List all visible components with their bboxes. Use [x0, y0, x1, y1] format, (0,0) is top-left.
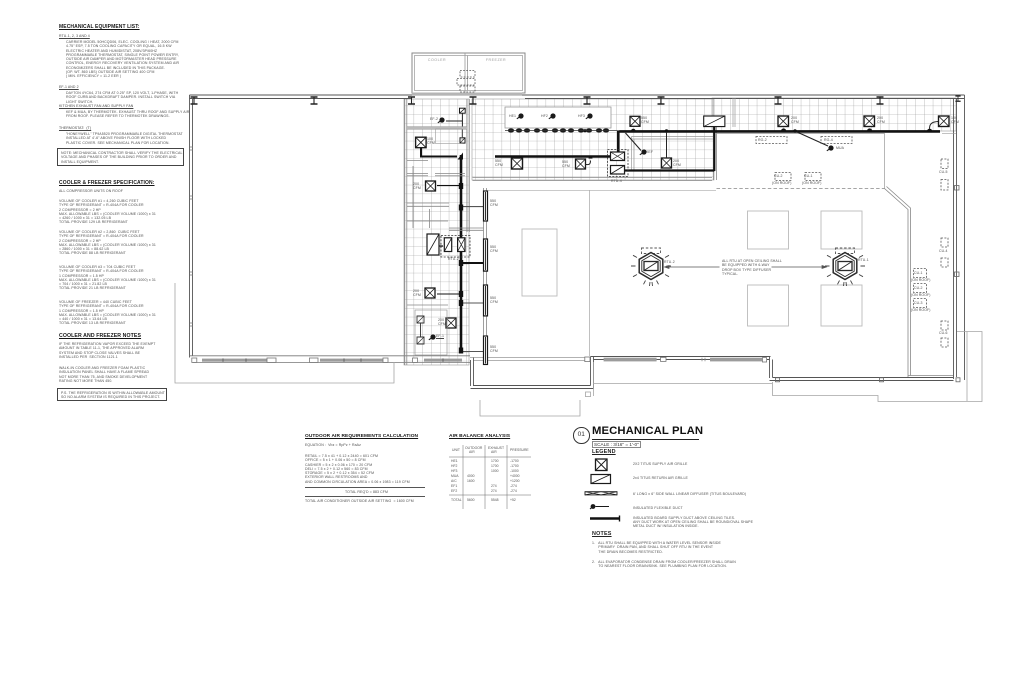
- svg-text:+52: +52: [510, 498, 516, 502]
- svg-text:4000: 4000: [467, 474, 475, 478]
- svg-text:HF2: HF2: [451, 464, 458, 468]
- svg-text:TOTAL: TOTAL: [451, 498, 462, 502]
- svg-text:5548: 5548: [491, 498, 499, 502]
- svg-text:1000: 1000: [491, 469, 499, 473]
- svg-text:-274: -274: [510, 489, 517, 493]
- svg-text:-1000: -1000: [510, 469, 519, 473]
- svg-text:AIR: AIR: [469, 450, 475, 454]
- svg-text:EF1: EF1: [451, 484, 457, 488]
- svg-text:A/C: A/C: [451, 479, 457, 483]
- svg-text:HF3: HF3: [451, 469, 458, 473]
- svg-text:COOLER: COOLER: [428, 58, 446, 62]
- svg-text:MUA: MUA: [451, 474, 459, 478]
- svg-text:AIR: AIR: [491, 450, 497, 454]
- svg-text:274: 274: [491, 484, 497, 488]
- svg-text:FREEZER: FREEZER: [486, 58, 506, 62]
- svg-text:HE1: HE1: [451, 459, 458, 463]
- svg-text:-1700: -1700: [510, 459, 519, 463]
- svg-text:-274: -274: [510, 484, 517, 488]
- svg-text:1700: 1700: [491, 459, 499, 463]
- svg-text:EF2: EF2: [451, 489, 457, 493]
- svg-text:274: 274: [491, 489, 497, 493]
- svg-text:+1200: +1200: [510, 479, 520, 483]
- svg-text:-1700: -1700: [510, 464, 519, 468]
- svg-text:1600: 1600: [467, 479, 475, 483]
- svg-text:+4000: +4000: [510, 474, 520, 478]
- svg-text:PRESSURE: PRESSURE: [510, 448, 529, 452]
- svg-text:UNIT: UNIT: [452, 448, 460, 452]
- svg-text:5600: 5600: [467, 498, 475, 502]
- svg-text:1700: 1700: [491, 464, 499, 468]
